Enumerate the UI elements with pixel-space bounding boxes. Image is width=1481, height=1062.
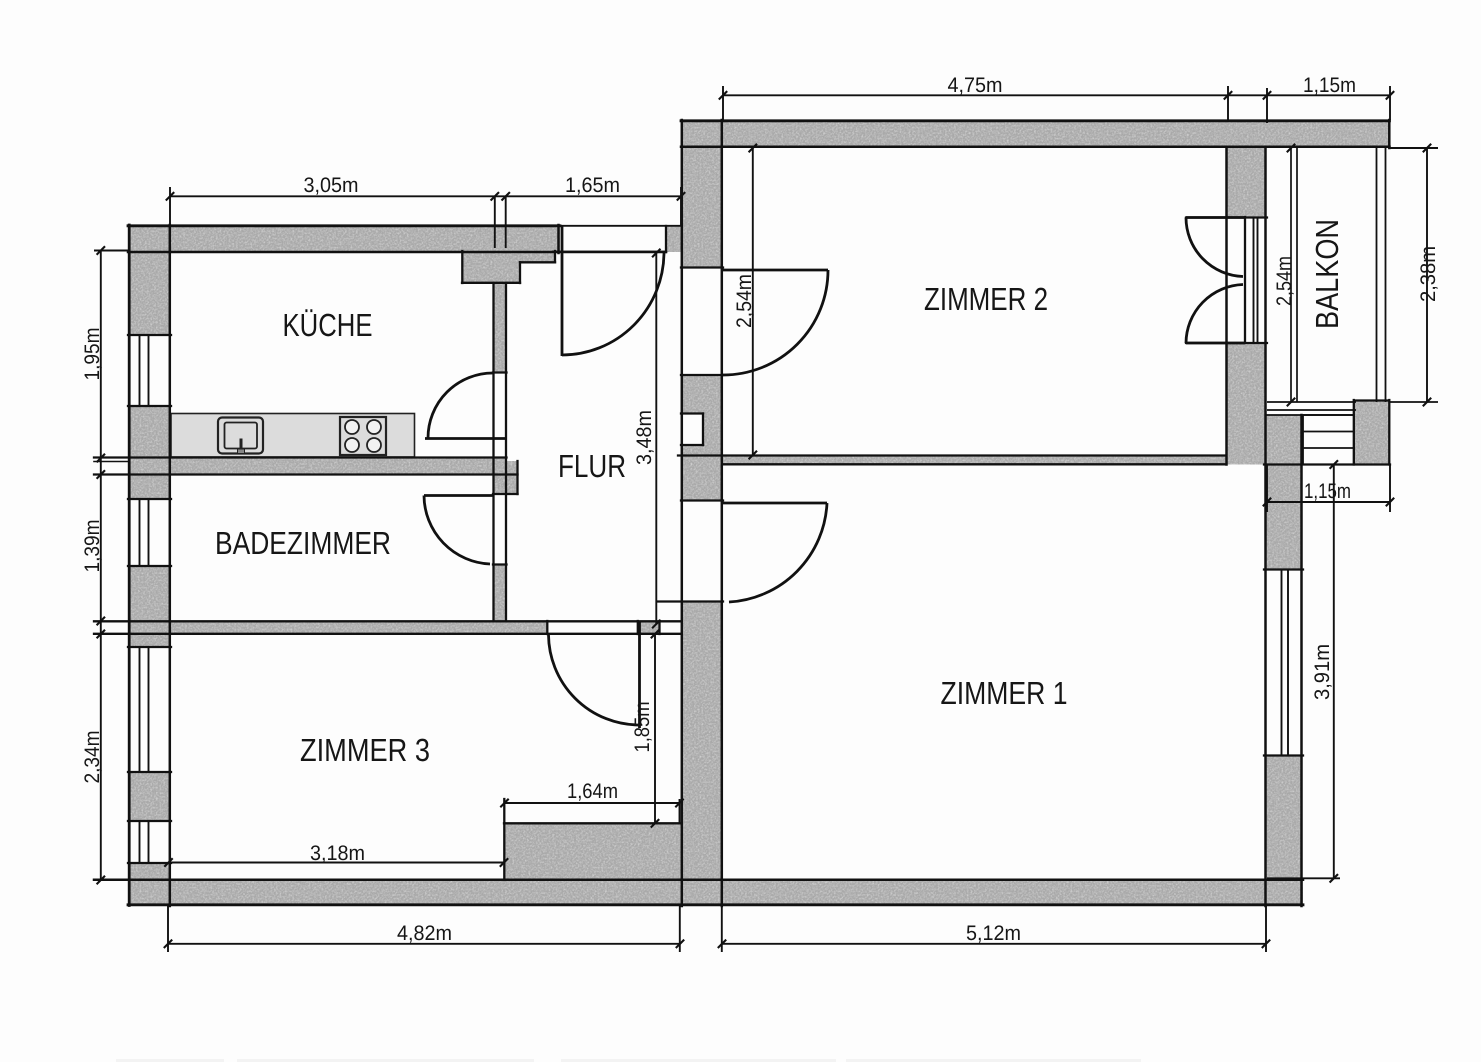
svg-text:BALKON: BALKON (1309, 219, 1345, 329)
svg-text:1,15m: 1,15m (1303, 74, 1356, 97)
svg-text:2,34m: 2,34m (81, 731, 104, 784)
svg-text:3,91m: 3,91m (1311, 644, 1334, 700)
svg-text:ZIMMER 1: ZIMMER 1 (941, 675, 1068, 711)
svg-text:ZIMMER 3: ZIMMER 3 (300, 732, 430, 768)
svg-text:ZIMMER 2: ZIMMER 2 (924, 281, 1048, 317)
svg-text:2,54m: 2,54m (1273, 256, 1296, 306)
svg-text:4,82m: 4,82m (397, 922, 452, 945)
svg-text:2,38m: 2,38m (1417, 246, 1440, 302)
svg-text:4,75m: 4,75m (948, 74, 1003, 97)
svg-text:1,95m: 1,95m (81, 328, 104, 381)
svg-text:3,18m: 3,18m (310, 842, 365, 865)
svg-text:3,48m: 3,48m (633, 410, 656, 465)
svg-text:2,54m: 2,54m (733, 274, 756, 328)
svg-text:1,65m: 1,65m (565, 174, 620, 197)
svg-text:KÜCHE: KÜCHE (283, 307, 373, 343)
svg-text:1,39m: 1,39m (81, 520, 104, 573)
svg-text:1,64m: 1,64m (567, 780, 618, 803)
svg-text:1,85m: 1,85m (631, 702, 654, 753)
svg-text:5,12m: 5,12m (966, 922, 1021, 945)
svg-text:1,15m: 1,15m (1304, 480, 1351, 503)
svg-text:3,05m: 3,05m (304, 174, 359, 197)
svg-text:BADEZIMMER: BADEZIMMER (215, 525, 391, 561)
svg-text:FLUR: FLUR (558, 448, 626, 484)
